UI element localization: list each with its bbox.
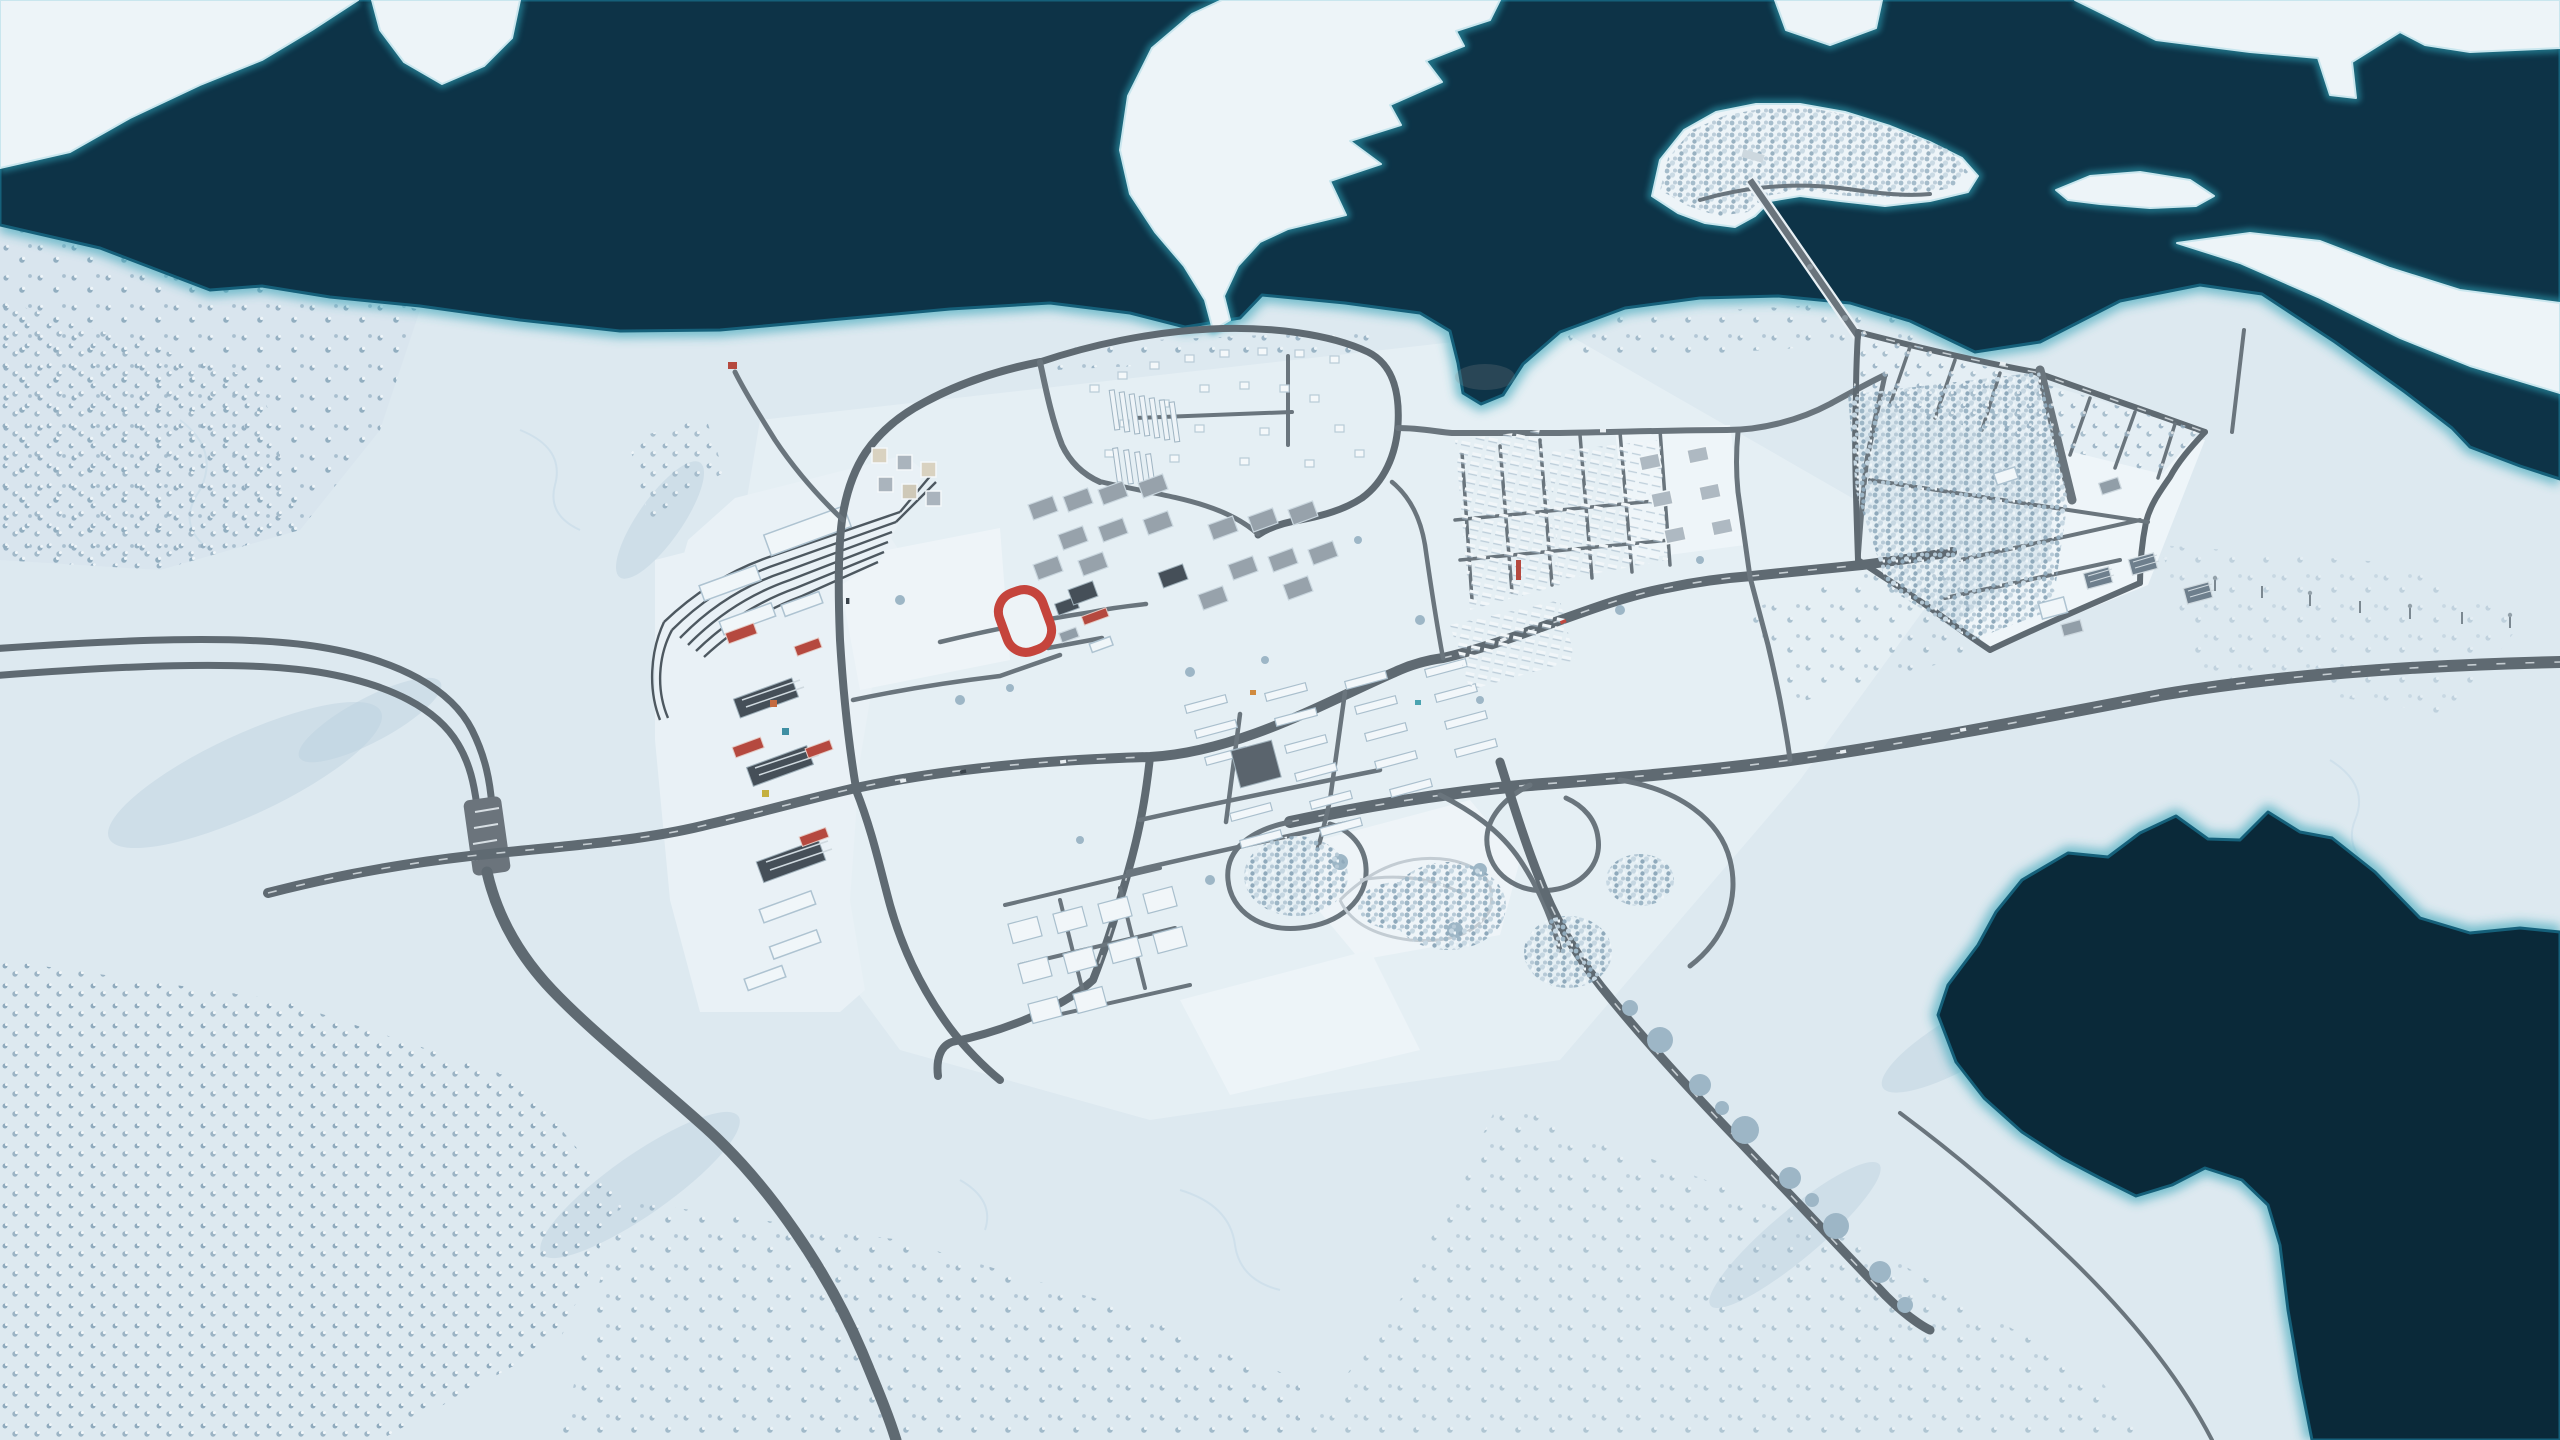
aerial-map-render: [0, 0, 2560, 1440]
small-island: [2056, 172, 2214, 208]
red-row-building: [1516, 560, 1521, 580]
game-viewport[interactable]: [0, 0, 2560, 1440]
small-red-building: [728, 362, 737, 369]
